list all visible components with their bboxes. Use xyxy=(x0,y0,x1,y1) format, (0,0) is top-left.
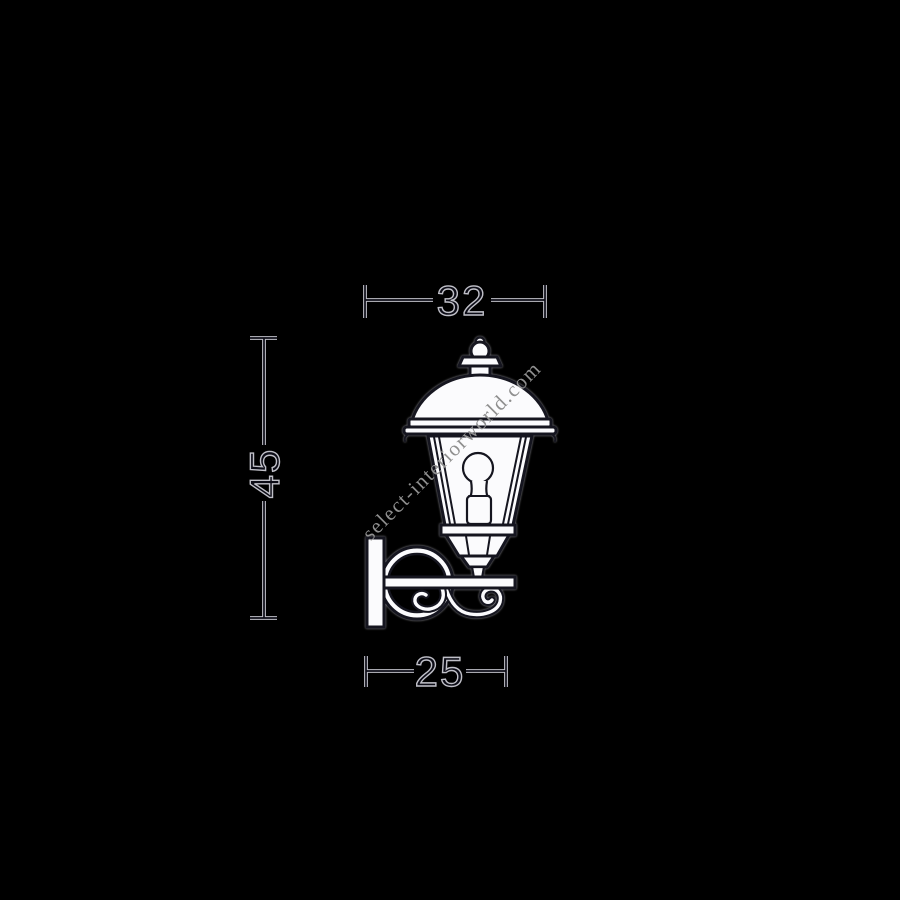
lantern-finial xyxy=(459,338,501,378)
bulb-base xyxy=(467,481,491,524)
dimension-bottom-value: 25 xyxy=(415,648,466,695)
cornice-lower-band xyxy=(404,427,556,434)
wall-lantern-drawing xyxy=(367,338,556,628)
lantern-dimension-diagram: 32 45 25 xyxy=(0,0,900,900)
base-cup xyxy=(446,535,509,556)
dimension-bottom: 25 xyxy=(366,648,506,695)
dimension-left-value: 45 xyxy=(241,448,288,499)
wall-plate xyxy=(367,538,384,627)
dimension-left: 45 xyxy=(241,338,288,618)
base-neck xyxy=(461,556,494,567)
bracket-arm xyxy=(384,577,515,588)
diagram-canvas: 32 45 25 select-interiorworld.com xyxy=(0,0,900,900)
bulb-globe xyxy=(463,453,493,483)
dimension-top: 32 xyxy=(365,277,545,324)
lantern-dome xyxy=(412,375,548,421)
dimension-top-value: 32 xyxy=(437,277,488,324)
